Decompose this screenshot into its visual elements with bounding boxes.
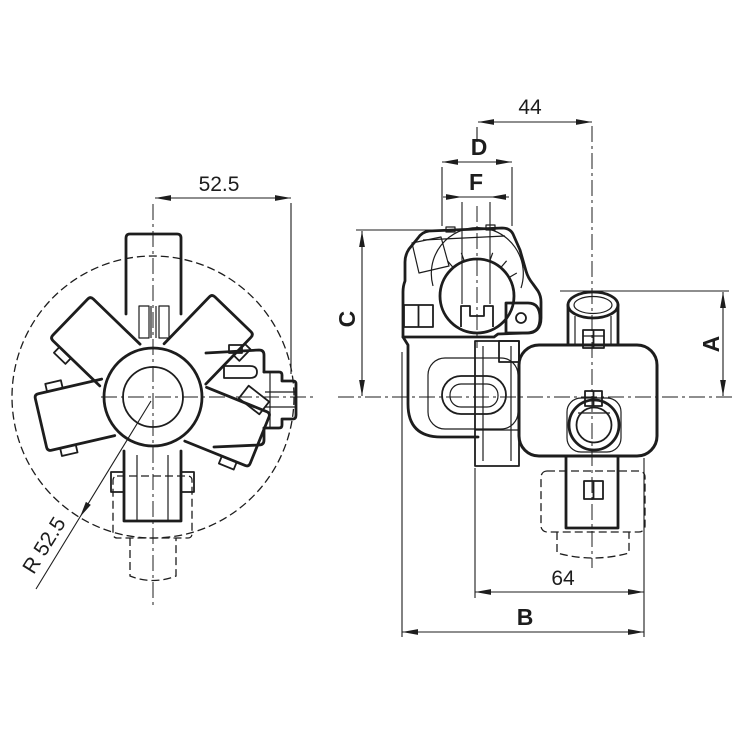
dim-label-height-c: C (334, 311, 360, 328)
flange-plate (475, 341, 519, 466)
dim-label-clamp-dia: D (471, 134, 488, 160)
dim-port-offset: 44 (477, 96, 592, 142)
dim-label-port-offset: 44 (518, 96, 542, 119)
bolt-hole (516, 313, 526, 323)
side-connector (206, 345, 296, 447)
dim-label-height-a: A (698, 336, 724, 353)
lower-right-arm (182, 387, 271, 474)
pipe-clamp (403, 225, 541, 337)
upper-right-arm (164, 294, 259, 389)
dim-front-width: 52.5 (155, 173, 291, 374)
dim-base-overall: B (402, 352, 644, 637)
dim-front-radius: R 52.5 (18, 401, 151, 589)
dim-label-base-inner: 64 (551, 567, 575, 590)
dim-label-base-overall: B (517, 604, 534, 630)
side-view: 44 D F C A (334, 96, 732, 637)
dim-label-front-width: 52.5 (199, 173, 240, 196)
elbow-arm (403, 337, 518, 437)
dim-label-slot-width: F (469, 169, 483, 195)
front-view: 52.5 R 52.5 (12, 173, 316, 606)
dim-height-c: C (334, 230, 458, 396)
technical-drawing-canvas: 52.5 R 52.5 (0, 0, 736, 736)
left-arm (33, 371, 117, 459)
drawing-svg: 52.5 R 52.5 (0, 0, 736, 736)
